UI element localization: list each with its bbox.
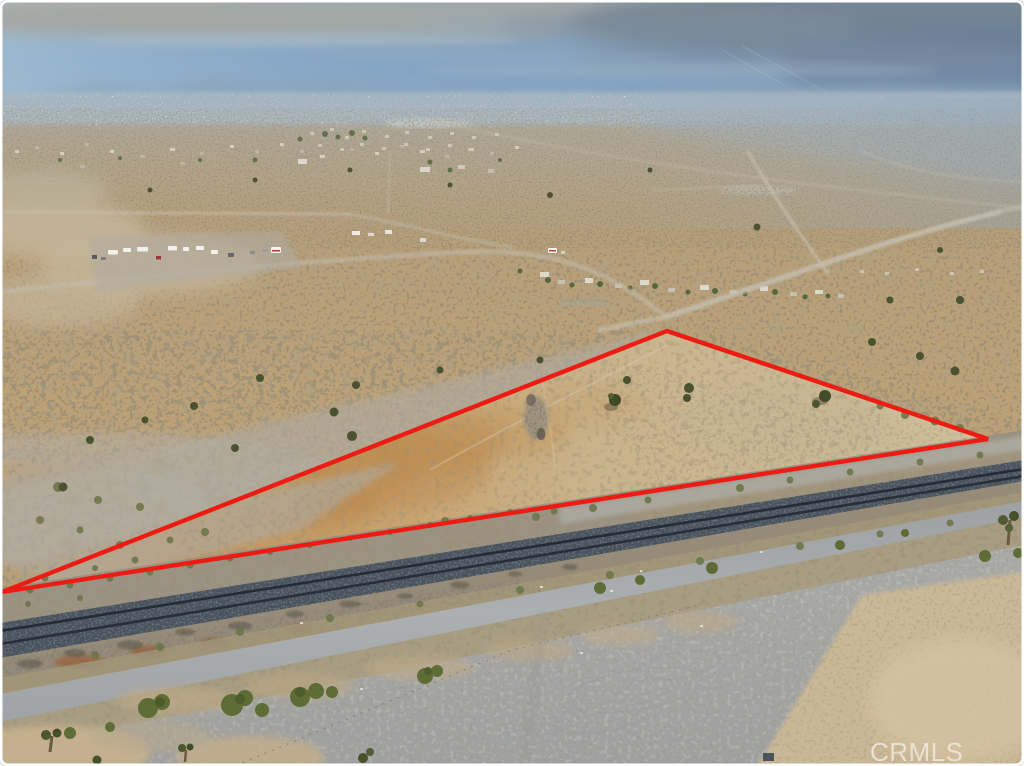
svg-text:CRMLS: CRMLS — [870, 737, 964, 766]
